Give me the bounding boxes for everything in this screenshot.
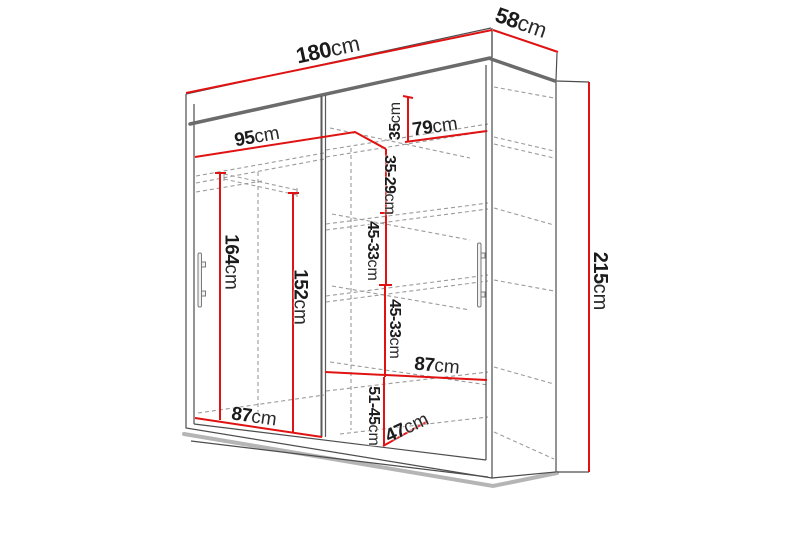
right-door-handle: [478, 243, 482, 307]
handle-bracket: [481, 292, 485, 297]
wardrobe-dimension-diagram: 180cm58cm95cm79cm35cm35-29cm45-33cm45-33…: [0, 0, 800, 533]
dim-line-depth: [493, 30, 558, 52]
handle-bracket: [202, 262, 206, 267]
right-side-face: [492, 58, 556, 478]
handle-bracket: [481, 253, 485, 258]
handle-bracket: [202, 291, 206, 296]
extension-line: [556, 81, 589, 82]
left-door-handle: [198, 253, 202, 307]
front-face: [186, 58, 492, 478]
diagram-canvas: [0, 0, 800, 533]
extension-line: [556, 53, 557, 80]
wardrobe-faces: [186, 28, 556, 478]
